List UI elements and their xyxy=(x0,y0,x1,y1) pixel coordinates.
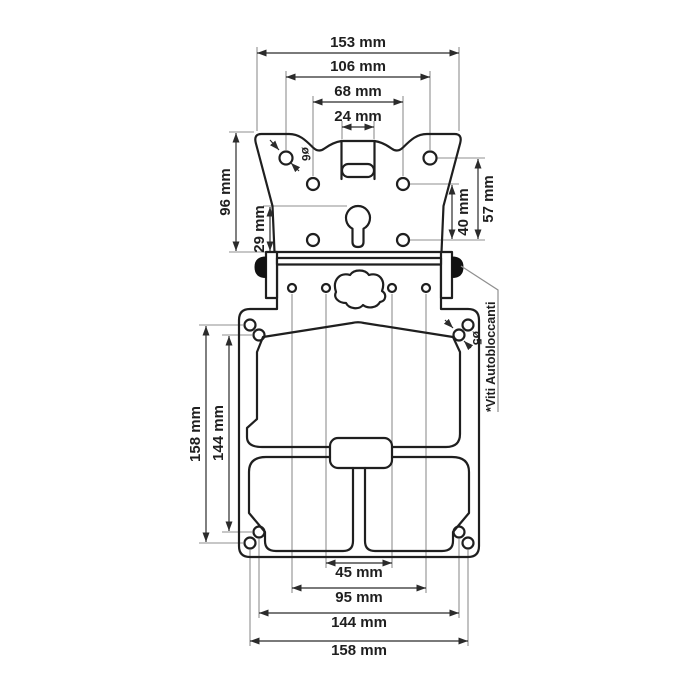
callout-arrow-d5 xyxy=(445,320,453,328)
pivot-bar xyxy=(277,258,441,265)
dim-label-68mm: 68 mm xyxy=(334,83,382,100)
dim-label-153mm: 153 mm xyxy=(330,34,386,51)
corner-hole-outer xyxy=(463,320,474,331)
dim-label-144mm-vertical: 144 mm xyxy=(210,405,227,461)
dim-label-144mm-bottom: 144 mm xyxy=(331,614,387,631)
clamp-side-bracket xyxy=(441,252,452,298)
callout-arrow-d6 xyxy=(270,140,279,150)
callout-arrow-d6 xyxy=(291,163,299,171)
bracket-hole xyxy=(397,234,409,246)
dim-label-29mm: 29 mm xyxy=(251,205,268,253)
drawing-canvas: 153 mm 106 mm 68 mm 24 mm 96 mm 29 mm 40… xyxy=(0,0,700,700)
bracket-hole xyxy=(307,234,319,246)
corner-hole-outer xyxy=(245,538,256,549)
locking-screw xyxy=(452,257,463,278)
center-tab xyxy=(330,438,392,468)
dim-label-95mm: 95 mm xyxy=(335,589,383,606)
bracket-hole-d6 xyxy=(280,152,293,165)
hole-label-d5: ø5 xyxy=(470,331,484,345)
keyhole xyxy=(346,206,370,247)
corner-hole-inner xyxy=(454,330,465,341)
corner-hole-inner xyxy=(254,330,265,341)
lower-plate xyxy=(239,262,479,557)
lower-right-cutout xyxy=(365,457,469,551)
cloud-cutout xyxy=(335,271,385,309)
dim-label-96mm: 96 mm xyxy=(217,168,234,216)
corner-hole-inner xyxy=(254,527,265,538)
dim-label-106mm: 106 mm xyxy=(330,58,386,75)
bracket-hole xyxy=(397,178,409,190)
clamp-assembly xyxy=(255,252,463,298)
locking-screw xyxy=(255,257,266,278)
dim-label-45mm: 45 mm xyxy=(335,564,383,581)
upper-window-cutout xyxy=(247,322,460,447)
dim-label-158mm-bottom: 158 mm xyxy=(331,642,387,659)
bracket-hole xyxy=(307,178,319,190)
plate-outline xyxy=(239,262,479,557)
bracket-hole xyxy=(424,152,437,165)
junction-hole xyxy=(422,284,430,292)
corner-hole-outer xyxy=(245,320,256,331)
bracket-dimension-drawing: 153 mm 106 mm 68 mm 24 mm 96 mm 29 mm 40… xyxy=(0,0,700,700)
corner-hole-inner xyxy=(454,527,465,538)
note-viti-autobloccanti: *Viti Autobloccanti xyxy=(484,302,498,412)
lower-left-cutout xyxy=(249,457,353,551)
junction-hole xyxy=(288,284,296,292)
clamp-side-bracket xyxy=(266,252,277,298)
hole-label-d6: ø6 xyxy=(299,147,313,161)
dim-label-158mm-vertical: 158 mm xyxy=(187,406,204,462)
corner-hole-outer xyxy=(463,538,474,549)
junction-hole xyxy=(388,284,396,292)
dim-label-40mm: 40 mm xyxy=(455,188,472,236)
dim-label-57mm: 57 mm xyxy=(480,175,497,223)
dim-label-24mm: 24 mm xyxy=(334,108,382,125)
slot xyxy=(342,164,374,177)
junction-hole xyxy=(322,284,330,292)
upper-bracket xyxy=(255,134,460,252)
callout-arrow-d5 xyxy=(464,341,471,348)
